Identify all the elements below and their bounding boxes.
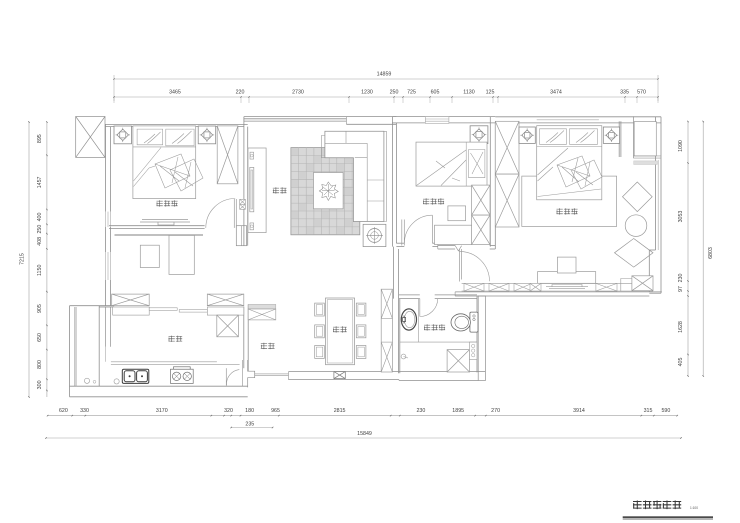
svg-text:270: 270 [491,408,500,414]
svg-text:400: 400 [37,213,43,222]
svg-text:570: 570 [637,90,646,96]
svg-text:15849: 15849 [357,431,372,437]
svg-text:2815: 2815 [334,408,346,414]
svg-text:590: 590 [661,408,670,414]
svg-text:1:100: 1:100 [690,506,698,510]
svg-text:335: 335 [620,90,629,96]
svg-text:315: 315 [644,408,653,414]
svg-text:965: 965 [271,408,280,414]
svg-text:1090: 1090 [678,140,684,152]
svg-text:300: 300 [37,380,43,389]
svg-text:180: 180 [245,408,254,414]
svg-text:230: 230 [678,274,684,283]
svg-text:230: 230 [416,408,425,414]
svg-text:650: 650 [37,333,43,342]
svg-text:620: 620 [59,408,68,414]
svg-text:2730: 2730 [292,90,304,96]
svg-text:6803: 6803 [708,247,714,259]
svg-text:1895: 1895 [452,408,464,414]
svg-text:3053: 3053 [678,211,684,223]
svg-text:3465: 3465 [169,90,181,96]
svg-text:125: 125 [486,90,495,96]
svg-text:895: 895 [37,134,43,143]
svg-text:1230: 1230 [361,90,373,96]
svg-text:725: 725 [407,90,416,96]
svg-text:7215: 7215 [20,253,26,265]
svg-text:14859: 14859 [377,72,392,78]
svg-text:250: 250 [390,90,399,96]
svg-text:3914: 3914 [573,408,585,414]
svg-text:330: 330 [80,408,89,414]
svg-text:220: 220 [236,90,245,96]
svg-text:320: 320 [224,408,233,414]
svg-text:905: 905 [37,304,43,313]
svg-text:1628: 1628 [678,321,684,333]
svg-text:605: 605 [431,90,440,96]
svg-text:800: 800 [37,360,43,369]
svg-text:3170: 3170 [156,408,168,414]
svg-text:3474: 3474 [550,90,562,96]
svg-text:235: 235 [245,422,254,428]
svg-text:1150: 1150 [37,265,43,276]
svg-text:250: 250 [37,225,43,234]
svg-text:408: 408 [37,237,43,246]
svg-text:97: 97 [678,286,684,292]
svg-text:405: 405 [678,358,684,367]
svg-text:1130: 1130 [463,90,474,96]
svg-text:1457: 1457 [37,176,43,188]
